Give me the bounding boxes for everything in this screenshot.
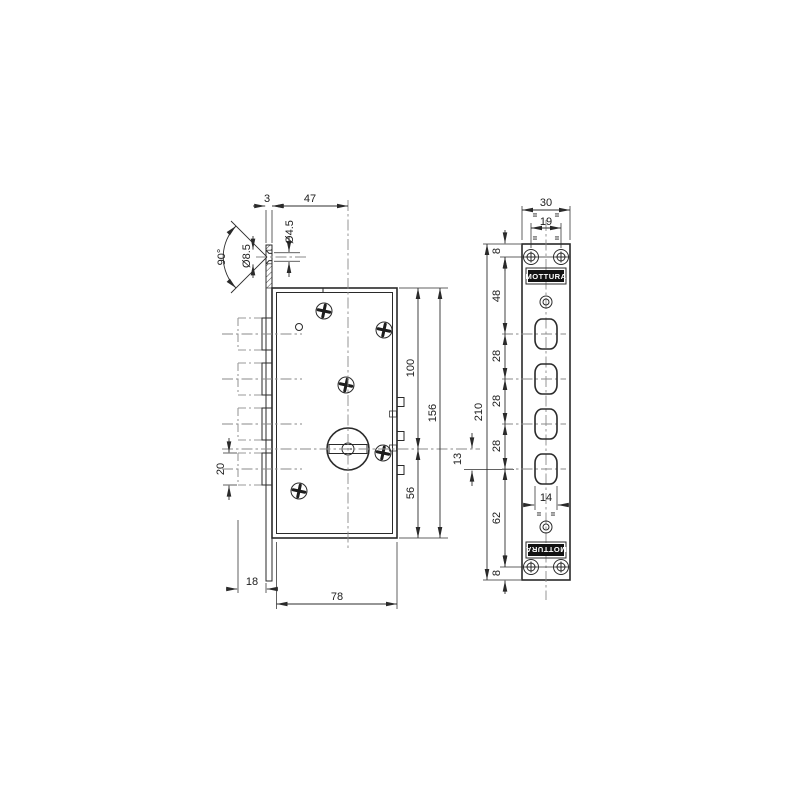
equal-mark: = bbox=[533, 211, 538, 220]
dim-plate-height: 210 bbox=[473, 403, 485, 421]
phillips-screw-icon bbox=[375, 445, 391, 461]
dim-case-depth: 78 bbox=[331, 591, 343, 603]
dim-bolt-throw: 18 bbox=[246, 576, 258, 588]
dim-top-to-axis: 100 bbox=[405, 359, 417, 377]
dim-case-height: 156 bbox=[427, 404, 439, 422]
brand-text-top: MOTTURA bbox=[525, 272, 566, 281]
dim-bolt-pitch-a: 28 bbox=[491, 350, 503, 362]
brand-plate-top: MOTTURA bbox=[525, 268, 566, 284]
dim-screws-to-first-bolt: 48 bbox=[491, 290, 503, 302]
screw-hole-icon bbox=[524, 250, 539, 265]
dim-countersink-angle: 90° bbox=[216, 249, 228, 266]
technical-drawing: 3 47 Ø4.5 Ø8.5 90° 100 156 56 20 13 18 7… bbox=[0, 0, 800, 800]
dim-last-bolt-to-screws: 62 bbox=[491, 512, 503, 524]
dim-bolt-slot-width: 14 bbox=[540, 492, 552, 504]
phillips-screw-icon bbox=[338, 377, 354, 393]
equal-mark: = bbox=[555, 211, 560, 220]
equal-mark: = bbox=[533, 234, 538, 243]
screw-hole-icon bbox=[524, 560, 539, 575]
phillips-screw-icon bbox=[316, 303, 332, 319]
dim-countersink-dia: Ø8.5 bbox=[241, 244, 253, 268]
dim-screw-hole-dia: Ø4.5 bbox=[284, 220, 296, 244]
dim-screw-spacing: 19 bbox=[540, 216, 552, 228]
screw-hole-icon bbox=[554, 250, 569, 265]
dim-axis-to-bottom: 56 bbox=[405, 487, 417, 499]
dim-plate-width: 30 bbox=[540, 197, 552, 209]
dim-bolt-pitch-b: 28 bbox=[491, 395, 503, 407]
equal-mark: = bbox=[555, 234, 560, 243]
equal-mark: = bbox=[537, 510, 542, 519]
brand-text-bottom: MOTTURA bbox=[525, 545, 566, 554]
dim-backset: 47 bbox=[304, 193, 316, 205]
screw-hole-icon bbox=[554, 560, 569, 575]
dim-top-margin: 8 bbox=[491, 248, 503, 254]
phillips-screw-icon bbox=[291, 483, 307, 499]
dim-axis-to-bolt-offset: 13 bbox=[452, 453, 464, 465]
dim-bolt-pitch-c: 28 bbox=[491, 440, 503, 452]
canvas-background bbox=[0, 0, 800, 800]
brand-plate-bottom: MOTTURA bbox=[525, 542, 566, 558]
equal-mark: = bbox=[551, 510, 556, 519]
dim-bottom-margin: 8 bbox=[491, 570, 503, 576]
dim-bolt-dia: 20 bbox=[215, 463, 227, 475]
lock-technical-drawing-page: 3 47 Ø4.5 Ø8.5 90° 100 156 56 20 13 18 7… bbox=[0, 0, 800, 800]
dim-plate-thickness: 3 bbox=[264, 193, 270, 205]
phillips-screw-icon bbox=[376, 322, 392, 338]
